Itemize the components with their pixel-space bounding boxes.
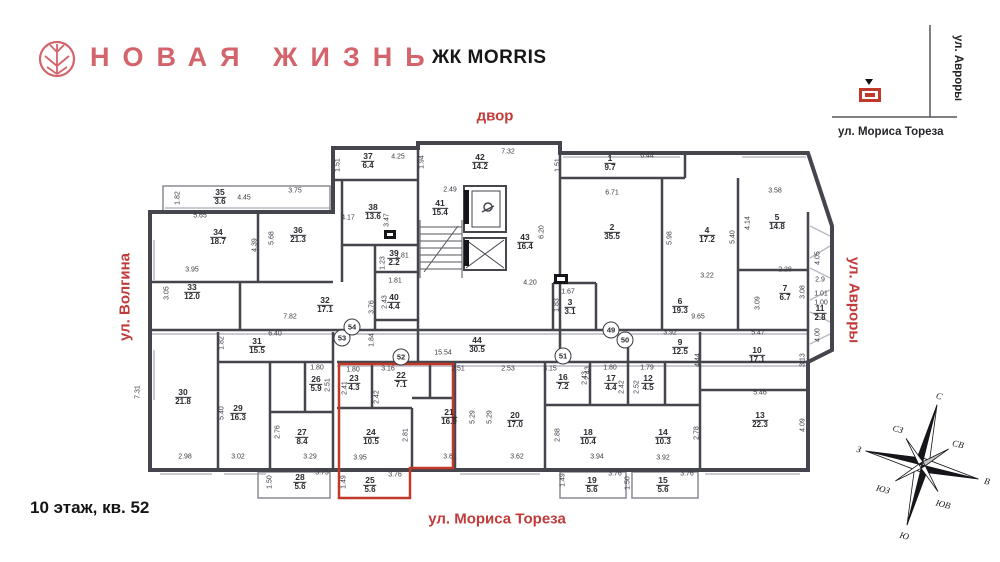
dimension-label: 5.46 xyxy=(753,390,767,397)
dimension-label: 3.75 xyxy=(315,470,329,477)
room-35-label: 353.6 xyxy=(213,188,226,206)
dimension-label: 2.42 xyxy=(619,380,626,394)
dimension-label: 1.49 xyxy=(560,473,567,487)
dimension-label: 4.17 xyxy=(341,215,355,222)
room-34-label: 3418.7 xyxy=(210,228,226,246)
dimension-label: 3.22 xyxy=(700,273,714,280)
dimension-label: 15.54 xyxy=(434,350,452,357)
dimension-label: 4.44 xyxy=(695,353,702,367)
dimension-label: 2.76 xyxy=(275,425,282,439)
dimension-label: 2.28 xyxy=(778,267,792,274)
dimension-label: 3.61 xyxy=(443,454,457,461)
dimension-label: 3.94 xyxy=(590,454,604,461)
dimension-label: 2.53 xyxy=(501,366,515,373)
room-24-label: 2410.5 xyxy=(363,428,379,446)
room-42-label: 4214.2 xyxy=(472,153,488,171)
room-5-label: 514.8 xyxy=(769,213,785,231)
room-23-label: 234.3 xyxy=(347,374,360,392)
dimension-label: 1.81 xyxy=(388,278,402,285)
dimension-label: 5.68 xyxy=(269,231,276,245)
room-36-label: 3621.3 xyxy=(290,226,306,244)
dimension-label: 3.75 xyxy=(288,188,302,195)
room-19-label: 195.6 xyxy=(585,476,598,494)
dimension-label: 2.81 xyxy=(403,428,410,442)
dimension-label: 7.82 xyxy=(283,314,297,321)
dimension-label: 1.84 xyxy=(369,333,376,347)
dimension-label: 9.65 xyxy=(691,314,705,321)
dimension-label: 1.51 xyxy=(555,158,562,172)
dimension-label: 4.09 xyxy=(800,418,807,432)
room-30-label: 3021.8 xyxy=(175,388,191,406)
room-7-label: 76.7 xyxy=(779,284,790,302)
room-44-label: 4430.5 xyxy=(469,336,485,354)
dimension-label: 1.49 xyxy=(341,475,348,489)
dimension-label: 3.09 xyxy=(755,296,762,310)
room-17-label: 174.4 xyxy=(604,374,617,392)
dimension-label: 3.95 xyxy=(185,267,199,274)
dimension-label: 1.94 xyxy=(419,155,426,169)
dimension-label: 5.29 xyxy=(470,410,477,424)
axis-marker-51: 51 xyxy=(555,348,572,365)
dimension-label: 3.02 xyxy=(231,454,245,461)
dimension-label: 1.67 xyxy=(561,289,575,296)
room-20-label: 2017.0 xyxy=(507,411,523,429)
dimension-label: 6.71 xyxy=(605,190,619,197)
dimension-label: 1.50 xyxy=(267,475,274,489)
room-32-label: 3217.1 xyxy=(317,296,333,314)
room-40-label: 404.4 xyxy=(387,293,400,311)
dimension-label: 6.20 xyxy=(539,225,546,239)
room-12-label: 124.5 xyxy=(641,374,654,392)
room-38-label: 3813.6 xyxy=(365,203,381,221)
room-21-label: 2116.9 xyxy=(441,408,457,426)
dimension-label: 3.29 xyxy=(303,454,317,461)
room-6-label: 619.3 xyxy=(672,297,688,315)
dimension-label: 2.49 xyxy=(443,187,457,194)
dimension-label: 3.15 xyxy=(543,366,557,373)
room-25-label: 255.6 xyxy=(363,476,376,494)
room-28-label: 285.6 xyxy=(293,473,306,491)
dimension-label: 3.76 xyxy=(608,471,622,478)
plan-labels-layer: 19.7235.533.1417.2514.8619.376.7912.5101… xyxy=(0,0,1000,562)
dimension-label: 3.62 xyxy=(510,454,524,461)
dimension-label: 1.83 xyxy=(554,298,561,312)
dimension-label: 1.01 xyxy=(814,291,828,298)
axis-marker-54: 54 xyxy=(344,319,361,336)
room-27-label: 278.4 xyxy=(295,428,308,446)
room-4-label: 417.2 xyxy=(699,226,715,244)
dimension-label: 3.76 xyxy=(369,300,376,314)
dimension-label: 3.76 xyxy=(388,472,402,479)
dimension-label: 4.20 xyxy=(523,280,537,287)
room-43-label: 4316.4 xyxy=(517,233,533,251)
dimension-label: 1.80 xyxy=(310,365,324,372)
dimension-label: 3.47 xyxy=(384,213,391,227)
axis-marker-50: 50 xyxy=(617,332,634,349)
room-16-label: 167.2 xyxy=(556,373,569,391)
room-13-label: 1322.3 xyxy=(752,411,768,429)
room-33-label: 3312.0 xyxy=(184,283,200,301)
room-41-label: 4115.4 xyxy=(432,199,448,217)
dimension-label: 1.82 xyxy=(219,336,226,350)
dimension-label: 6.44 xyxy=(640,153,654,160)
room-3-label: 33.1 xyxy=(564,298,575,316)
dimension-label: 1.80 xyxy=(603,365,617,372)
dimension-label: 2.51 xyxy=(451,366,465,373)
dimension-label: 5.98 xyxy=(667,231,674,245)
room-26-label: 265.9 xyxy=(309,375,322,393)
room-15-label: 155.6 xyxy=(656,476,669,494)
dimension-label: 3.08 xyxy=(800,285,807,299)
dimension-label: 2.42 xyxy=(374,390,381,404)
dimension-label: 5.47 xyxy=(751,330,765,337)
room-39-label: 392.2 xyxy=(387,249,400,267)
dimension-label: 3.92 xyxy=(663,330,677,337)
dimension-label: 4.39 xyxy=(252,238,259,252)
room-1-label: 19.7 xyxy=(604,154,615,172)
dimension-label: 3.95 xyxy=(353,455,367,462)
room-9-label: 912.5 xyxy=(672,338,688,356)
dimension-label: 3.92 xyxy=(656,455,670,462)
dimension-label: 2.43 xyxy=(585,366,592,380)
dimension-label: 6.40 xyxy=(268,331,282,338)
room-11-label: 112.8 xyxy=(814,304,827,322)
dimension-label: 4.45 xyxy=(237,195,251,202)
dimension-label: 7.31 xyxy=(135,385,142,399)
dimension-label: 2.9 xyxy=(815,277,825,284)
dimension-label: 3.16 xyxy=(381,366,395,373)
dimension-label: 2.98 xyxy=(178,454,192,461)
room-31-label: 3115.5 xyxy=(249,337,265,355)
dimension-label: 3.13 xyxy=(800,353,807,367)
room-10-label: 1017.1 xyxy=(749,346,765,364)
room-18-label: 1810.4 xyxy=(580,428,596,446)
dimension-label: 2.51 xyxy=(325,378,332,392)
dimension-label: 3.58 xyxy=(768,188,782,195)
dimension-label: 1.50 xyxy=(625,476,632,490)
room-22-label: 227.1 xyxy=(394,371,407,389)
dimension-label: 5.40 xyxy=(219,406,226,420)
dimension-label: 1.79 xyxy=(640,365,654,372)
dimension-label: 3.05 xyxy=(164,286,171,300)
dimension-label: 1.23 xyxy=(380,256,387,270)
dimension-label: 5.40 xyxy=(730,230,737,244)
dimension-label: 1.51 xyxy=(335,158,342,172)
dimension-label: 4.05 xyxy=(815,251,822,265)
dimension-label: 7.32 xyxy=(501,149,515,156)
floor-plan-page: НОВАЯ ЖИЗНЬ ЖК MORRIS ул. Мориса Тореза … xyxy=(0,0,1000,562)
dimension-label: 3.76 xyxy=(680,471,694,478)
dimension-label: 4.25 xyxy=(391,154,405,161)
dimension-label: 5.65 xyxy=(193,213,207,220)
dimension-label: 1.82 xyxy=(175,191,182,205)
room-29-label: 2916.3 xyxy=(230,404,246,422)
room-2-label: 235.5 xyxy=(604,223,620,241)
dimension-label: 5.29 xyxy=(487,410,494,424)
room-14-label: 1410.3 xyxy=(655,428,671,446)
axis-marker-52: 52 xyxy=(393,349,410,366)
dimension-label: 4.14 xyxy=(745,216,752,230)
dimension-label: 2.52 xyxy=(634,380,641,394)
room-37-label: 376.4 xyxy=(361,152,374,170)
dimension-label: 2.78 xyxy=(694,426,701,440)
dimension-label: 2.88 xyxy=(555,428,562,442)
dimension-label: 4.00 xyxy=(815,328,822,342)
